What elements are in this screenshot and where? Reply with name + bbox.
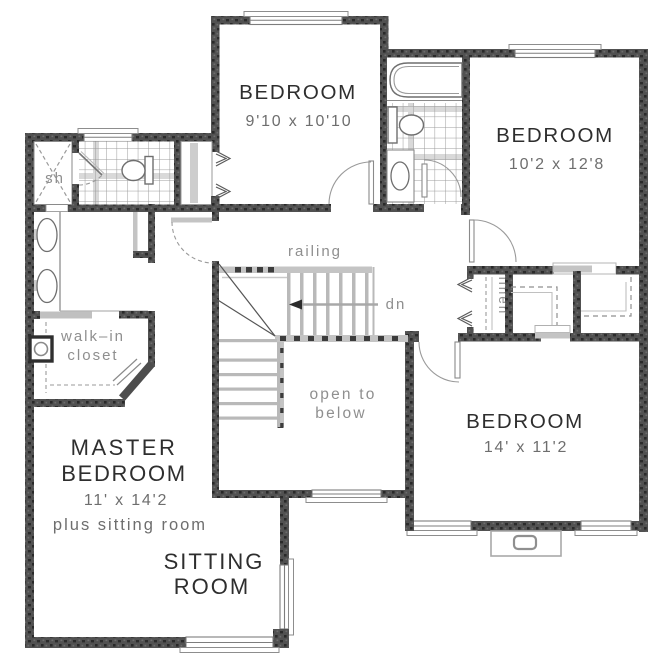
svg-text:dn: dn (386, 296, 407, 313)
svg-text:14' x 11'2: 14' x 11'2 (484, 439, 568, 456)
svg-text:SITTING: SITTING (164, 549, 265, 574)
svg-text:MASTER: MASTER (71, 435, 178, 460)
svg-text:sh: sh (45, 170, 65, 187)
svg-text:BEDROOM: BEDROOM (496, 124, 614, 147)
svg-text:11' x 14'2: 11' x 14'2 (84, 492, 168, 509)
svg-text:railing: railing (288, 243, 342, 260)
svg-text:ROOM: ROOM (174, 574, 250, 599)
svg-text:10'2 x 12'8: 10'2 x 12'8 (509, 156, 605, 173)
svg-text:walk–in: walk–in (60, 328, 125, 345)
svg-text:BEDROOM: BEDROOM (239, 81, 357, 104)
svg-text:9'10 x 10'10: 9'10 x 10'10 (246, 113, 353, 130)
svg-text:BEDROOM: BEDROOM (61, 461, 187, 486)
svg-text:plus sitting room: plus sitting room (53, 516, 207, 534)
svg-text:below: below (315, 405, 367, 422)
svg-text:open to: open to (309, 386, 376, 403)
svg-text:BEDROOM: BEDROOM (466, 410, 584, 433)
svg-text:closet: closet (67, 347, 118, 364)
